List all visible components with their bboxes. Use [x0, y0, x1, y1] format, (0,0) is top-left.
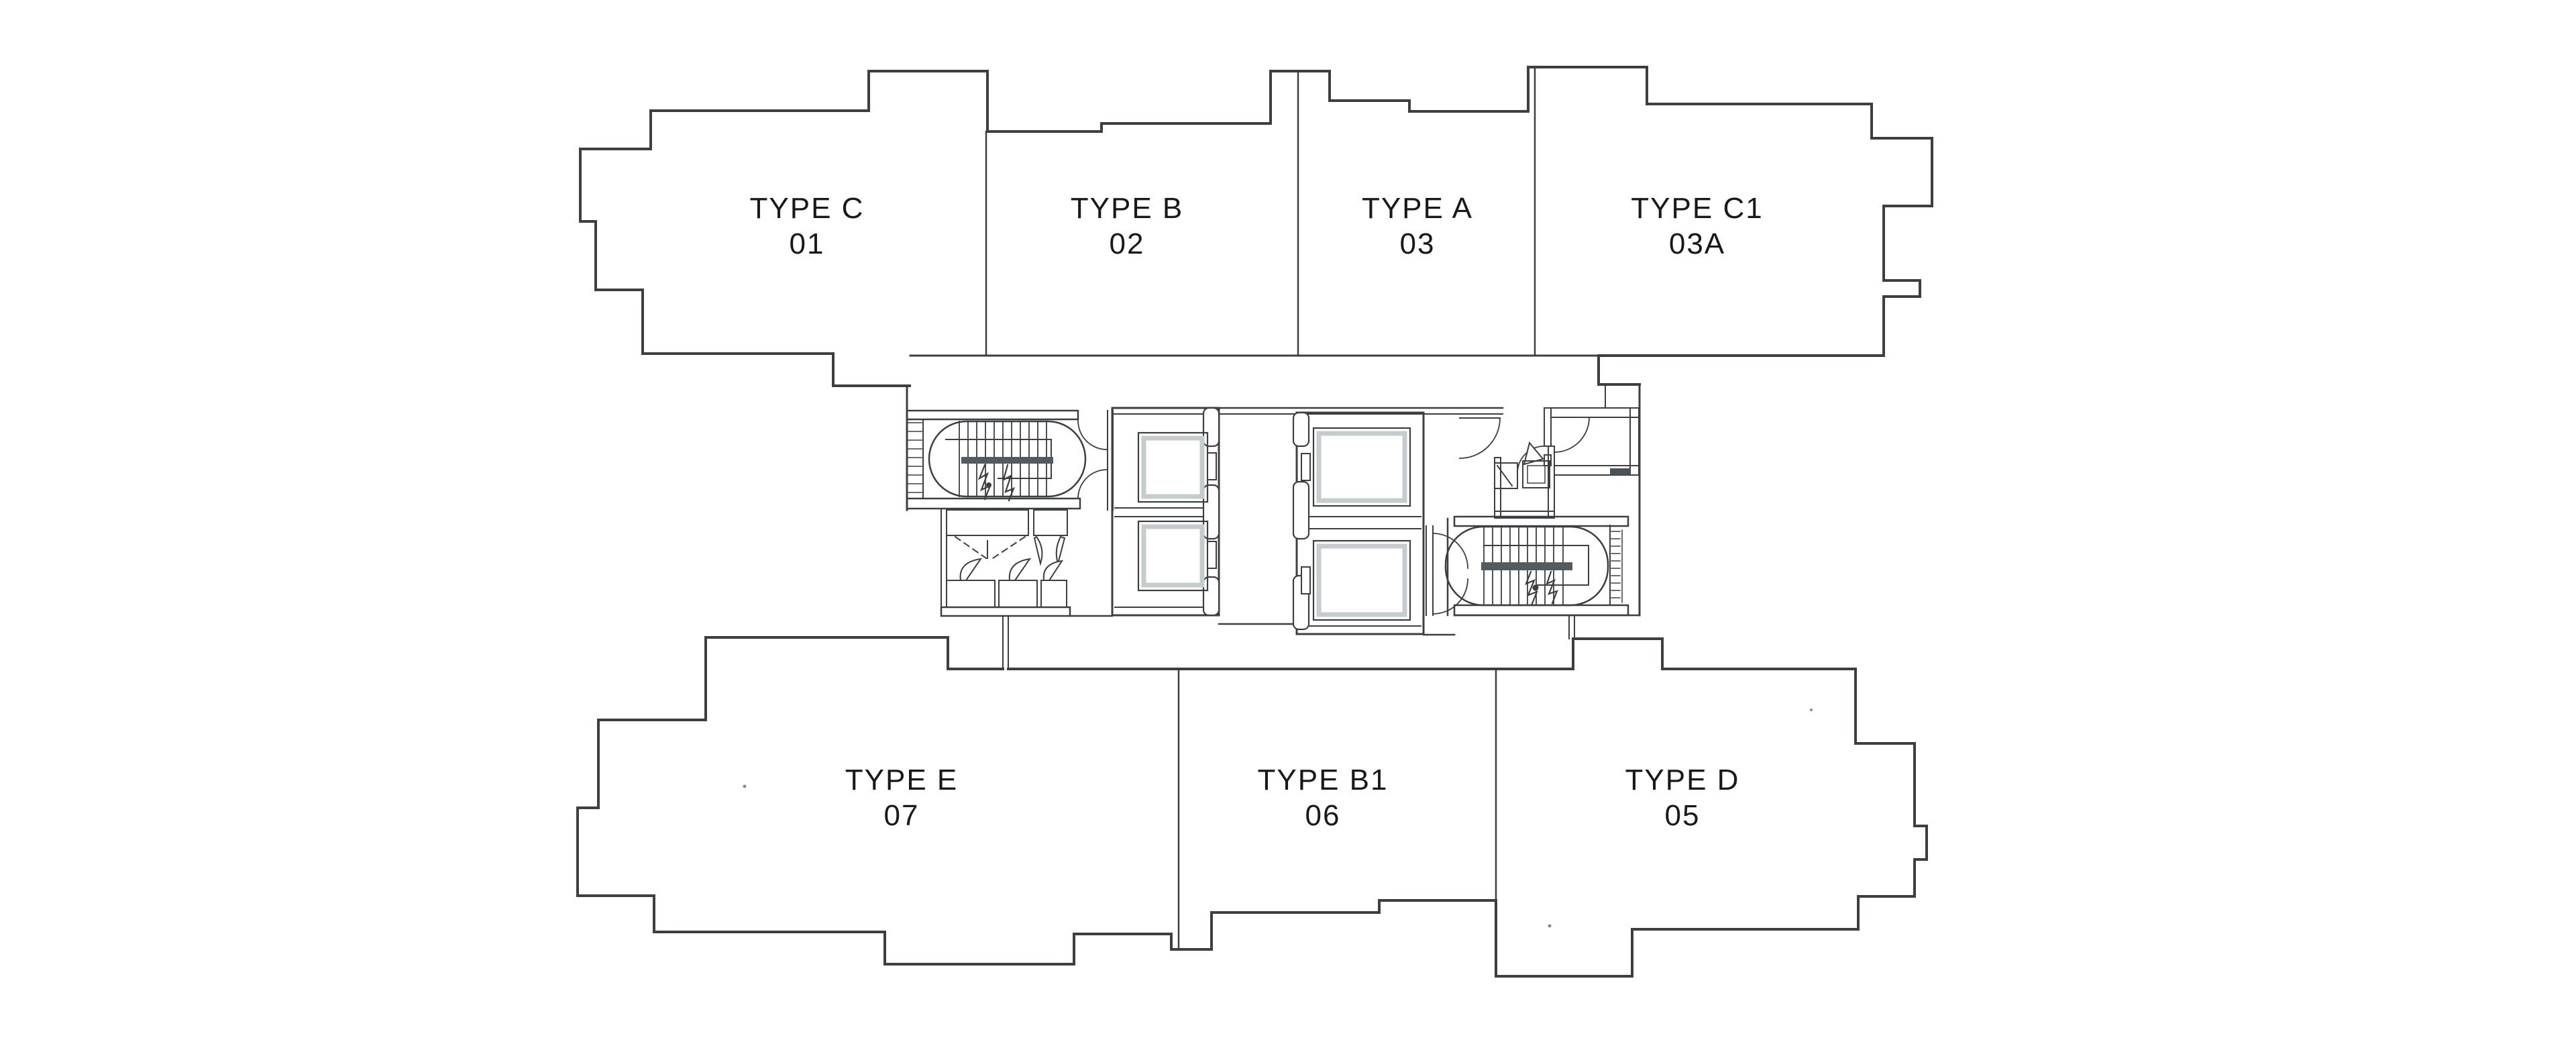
- unit-type: TYPE D: [1535, 762, 1830, 798]
- vent-rungs: [908, 423, 922, 492]
- unit-type: TYPE E: [754, 762, 1049, 798]
- unit-label-type-b: TYPE B 02: [979, 191, 1275, 262]
- unit-number: 03: [1270, 226, 1565, 262]
- unit-number: 01: [659, 226, 955, 262]
- floor-plan: TYPE C 01 TYPE B 02 TYPE A 03 TYPE C1 03…: [0, 0, 2576, 1044]
- elevator-bank-east: [1293, 413, 1424, 634]
- unit-label-type-b1: TYPE B1 06: [1175, 762, 1470, 833]
- elevator-bank-west: [1112, 408, 1219, 615]
- core-floor-edges: [1070, 615, 1640, 635]
- unit-type: TYPE C: [659, 191, 955, 226]
- unit-type: TYPE B: [979, 191, 1275, 226]
- vent-rungs: [1611, 531, 1620, 598]
- unit-number: 03A: [1550, 226, 1845, 262]
- unit-number: 07: [754, 798, 1049, 833]
- unit-type: TYPE B1: [1175, 762, 1470, 798]
- service-ducts: [1495, 446, 1554, 518]
- staircase-west: [907, 386, 1085, 510]
- unit-label-type-a: TYPE A 03: [1270, 191, 1565, 262]
- unit-label-type-d: TYPE D 05: [1535, 762, 1830, 833]
- staircase-east: [1426, 384, 1640, 615]
- unit-label-type-e: TYPE E 07: [754, 762, 1049, 833]
- elevator-car: [1301, 541, 1410, 620]
- unit-type: TYPE C1: [1550, 191, 1845, 226]
- unit-number: 06: [1175, 798, 1470, 833]
- stair-direction-arrows: [979, 465, 1014, 501]
- unit-number: 05: [1535, 798, 1830, 833]
- unit-type: TYPE A: [1270, 191, 1565, 226]
- window-sill-hatch: [1610, 468, 1630, 475]
- elevator-car: [1301, 428, 1410, 506]
- unit-number: 02: [979, 226, 1275, 262]
- floor-plan-drawing: [0, 0, 2576, 1044]
- unit-label-type-c: TYPE C 01: [659, 191, 955, 262]
- corridor-door-arcs: [1078, 411, 1113, 510]
- stair-landing: [961, 457, 1053, 464]
- unit-label-type-c1: TYPE C1 03A: [1550, 191, 1845, 262]
- stair-direction-arrows: [1526, 572, 1557, 605]
- lift-lobby: [941, 510, 1070, 616]
- stair-landing: [1481, 562, 1572, 570]
